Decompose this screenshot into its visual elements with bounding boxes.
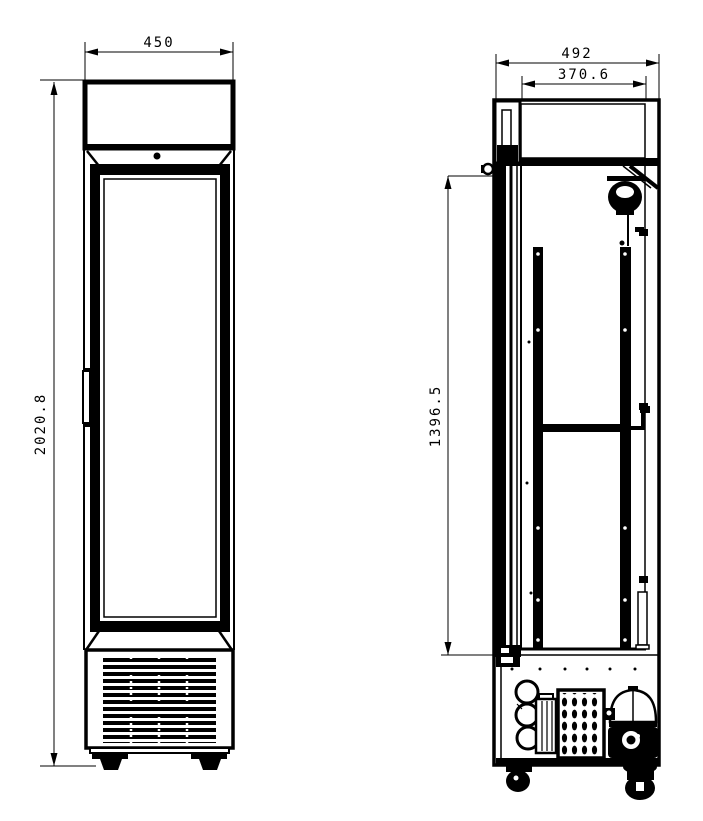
- filter-drier: [536, 694, 556, 753]
- front-header-box: [85, 82, 233, 148]
- front-width-label: 450: [143, 35, 174, 51]
- side-right-caster: [623, 760, 657, 800]
- door-handle: [83, 368, 92, 427]
- drawing-canvas: 450 2020.8: [0, 0, 703, 821]
- side-depth-label: 492: [561, 46, 592, 62]
- front-grille: [86, 650, 233, 748]
- rear-wall-bracket: [638, 592, 647, 645]
- brand-mark-icon: [195, 169, 216, 174]
- rear-shelf-rail: [620, 247, 631, 649]
- top-hinge-pin: [481, 164, 493, 174]
- side-interior-height-label: 1396.5: [428, 385, 444, 448]
- side-inner-depth-label: 370.6: [558, 67, 610, 83]
- front-header-bottom-band: [85, 144, 233, 150]
- condenser-block: [558, 690, 604, 758]
- rail-crossbar: [533, 424, 631, 432]
- technical-drawing: 450 2020.8: [0, 0, 703, 821]
- front-door: [83, 164, 230, 632]
- front-shelf-rail: [533, 247, 543, 649]
- front-height-label: 2020.8: [33, 393, 49, 456]
- side-header: [481, 101, 659, 174]
- side-door-top-box: [495, 101, 520, 164]
- lock-dot-icon: [154, 153, 161, 160]
